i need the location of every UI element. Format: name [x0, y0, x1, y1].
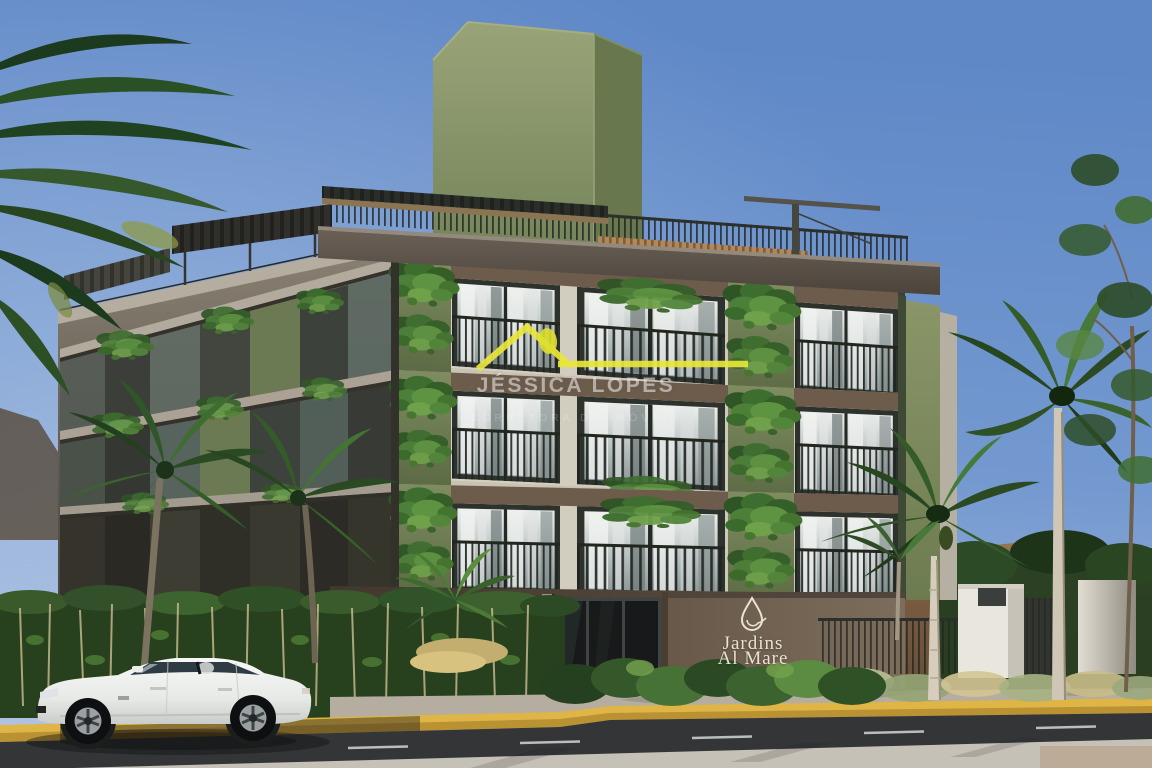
- window: [452, 391, 560, 484]
- sign-name-line2: Al Mare: [673, 651, 833, 666]
- taillight: [302, 688, 310, 694]
- corner-pilaster: [391, 250, 399, 600]
- architectural-rendering: Jardins Al Mare JÉSSICA LOPES CORRETORA …: [0, 0, 1152, 768]
- window: [795, 406, 898, 499]
- scene-artwork: [0, 0, 1152, 768]
- window: [452, 503, 560, 593]
- car-wheel: [230, 695, 276, 741]
- side-return-cream: [940, 312, 957, 600]
- window: [795, 302, 898, 397]
- gate-wall: [958, 584, 1024, 678]
- side-mirror: [132, 666, 143, 672]
- water-drop-leaf-icon: [738, 596, 768, 634]
- building-sign: Jardins Al Mare: [673, 596, 833, 666]
- metal-fence: [818, 620, 968, 674]
- main-facade: [388, 250, 957, 612]
- window: [452, 278, 560, 374]
- car-wheel: [65, 698, 111, 744]
